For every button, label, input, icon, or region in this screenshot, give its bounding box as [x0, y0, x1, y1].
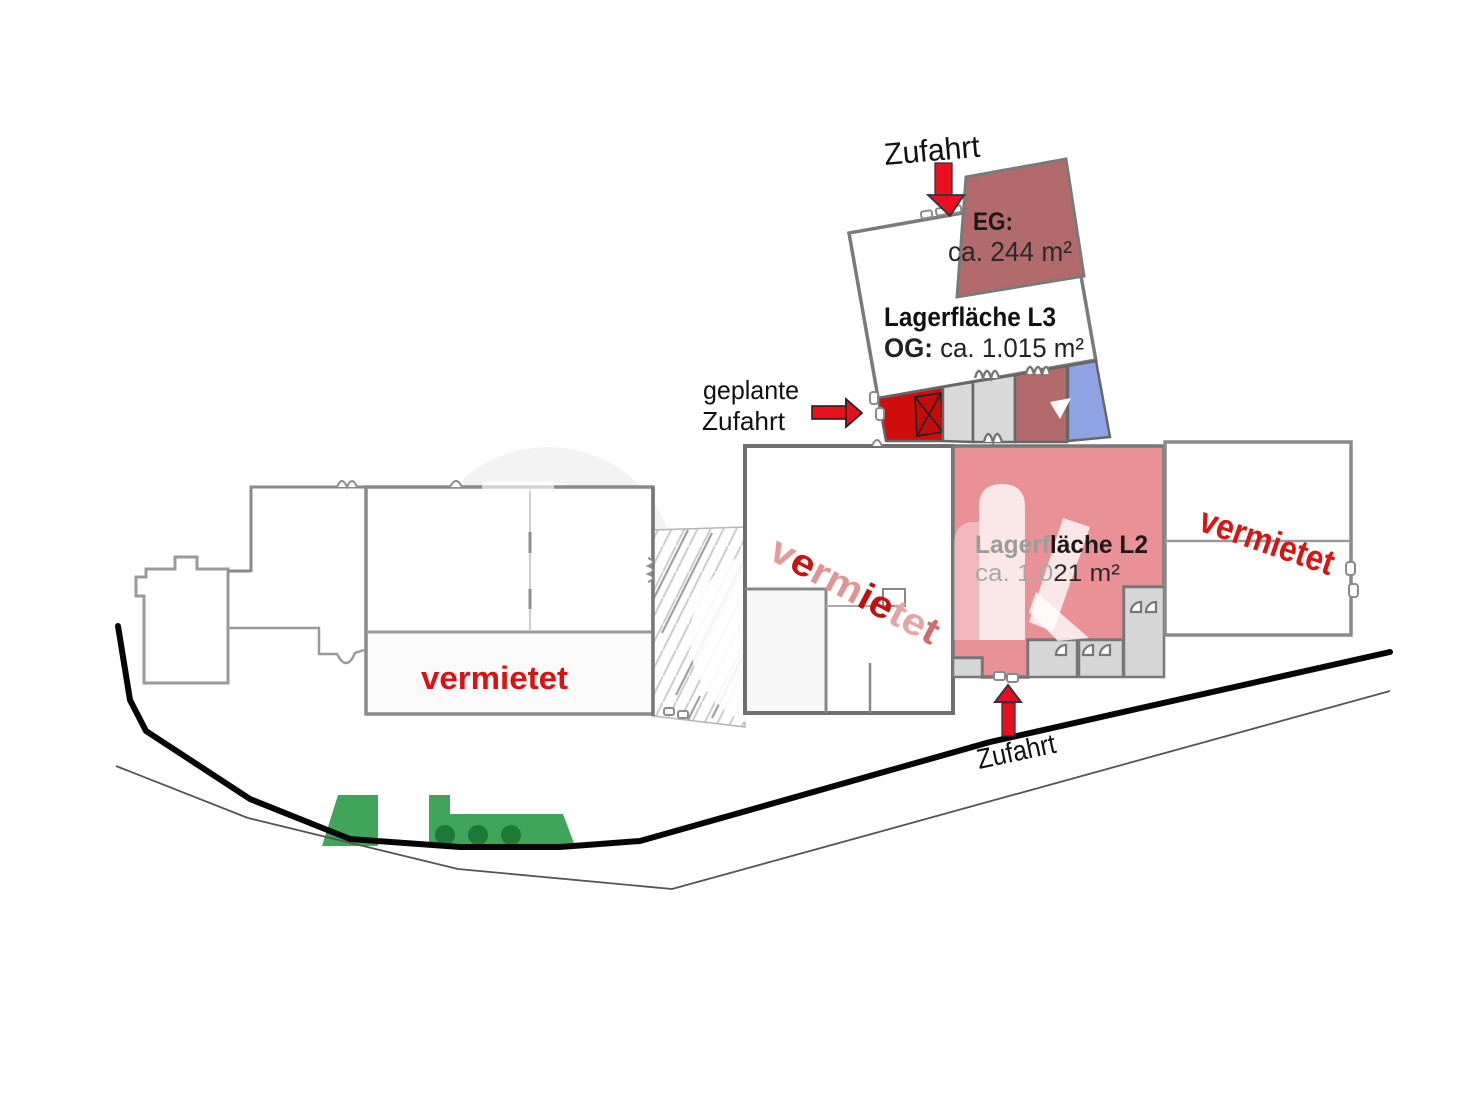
svg-text:Lagerfläche L2: Lagerfläche L2: [975, 531, 1148, 559]
svg-text:vermietet: vermietet: [421, 660, 568, 696]
svg-text:Zufahrt: Zufahrt: [702, 406, 786, 436]
svg-text:geplante: geplante: [703, 375, 799, 405]
svg-text:ca. 244 m²: ca. 244 m²: [948, 236, 1072, 267]
svg-text:OG: ca. 1.015 m²: OG: ca. 1.015 m²: [884, 333, 1084, 363]
svg-text:Lagerfläche L3: Lagerfläche L3: [884, 302, 1056, 332]
svg-text:ca. 1.021 m²: ca. 1.021 m²: [975, 560, 1120, 587]
svg-text:EG:: EG:: [973, 208, 1013, 236]
